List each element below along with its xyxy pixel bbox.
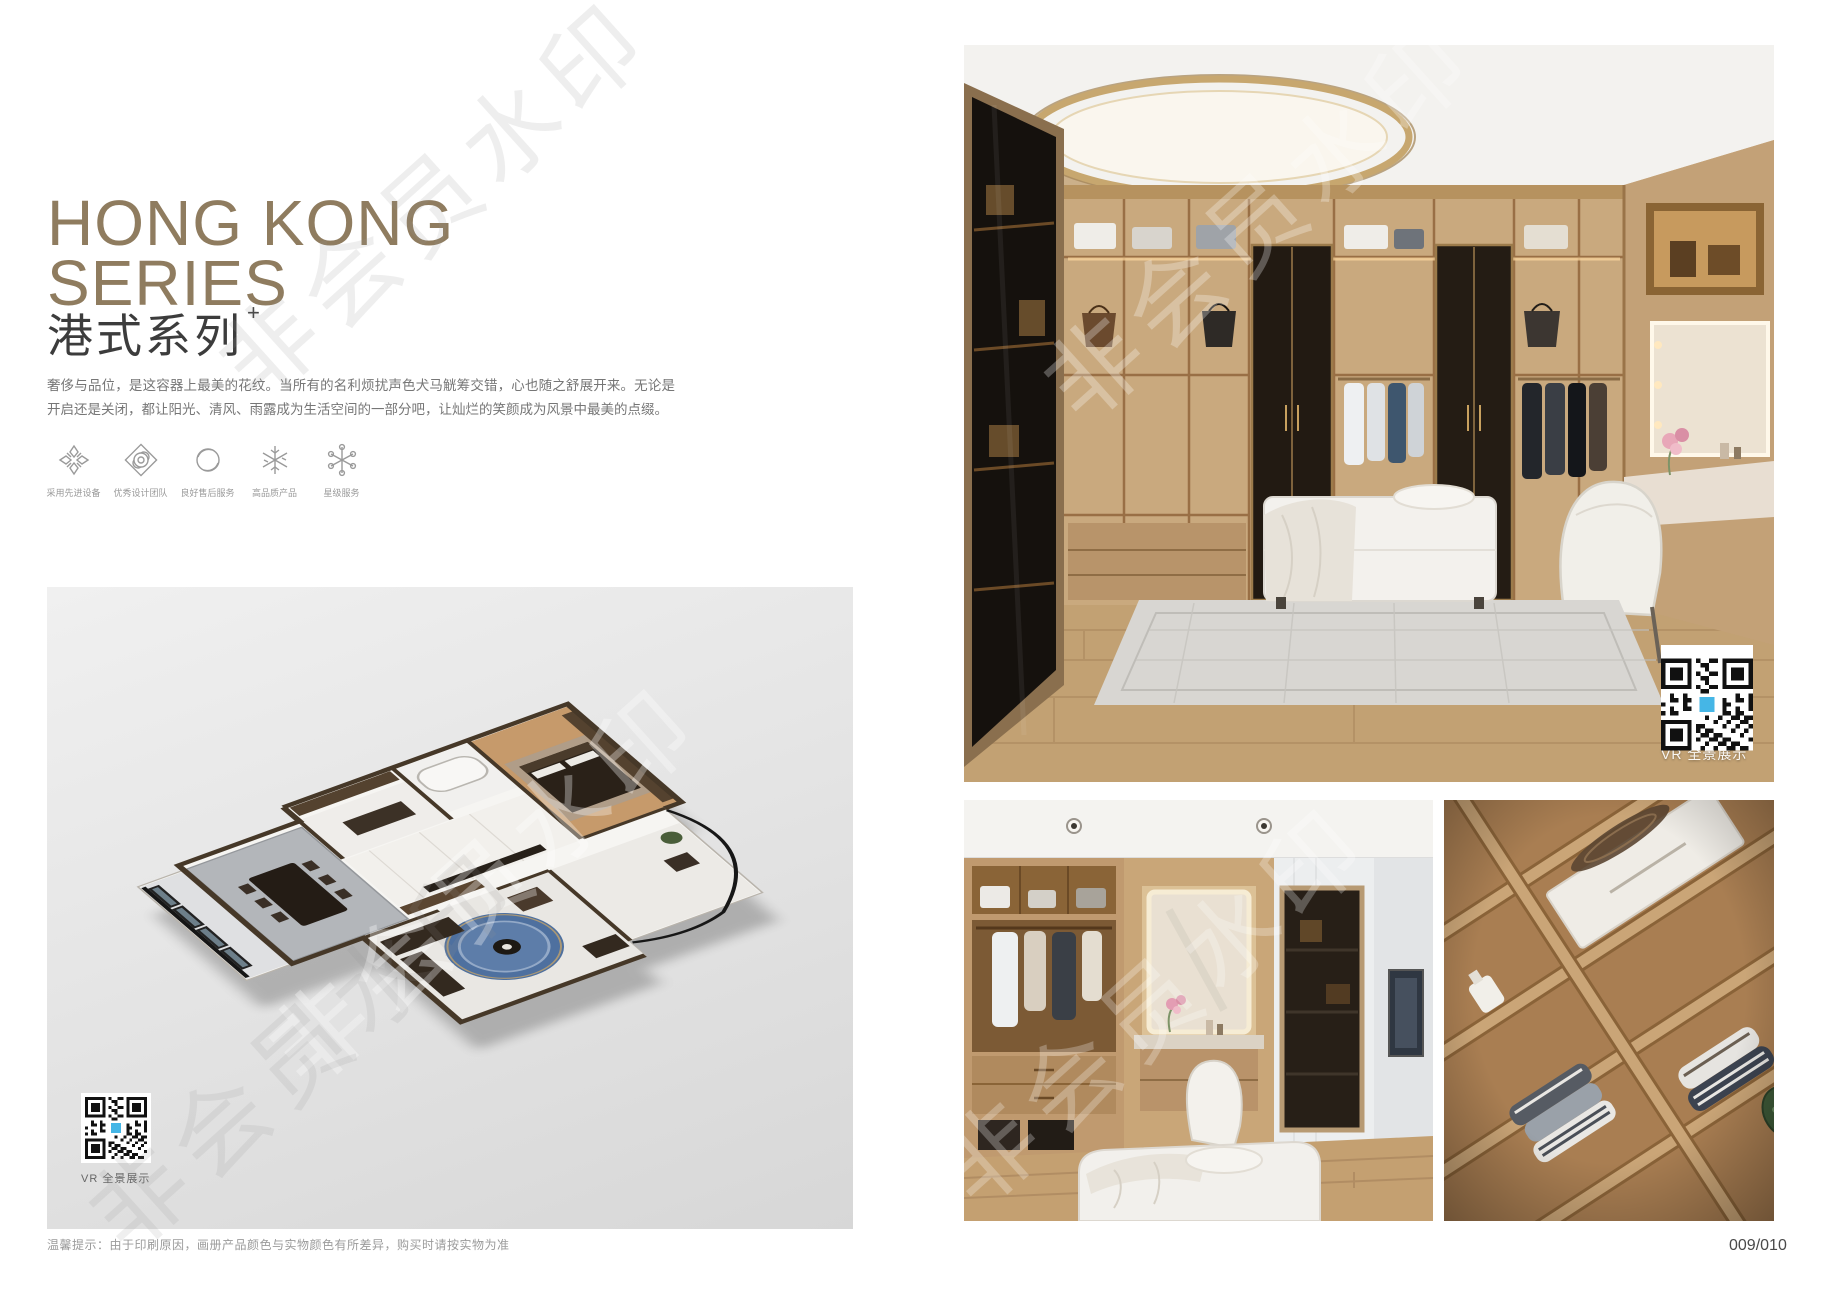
isometric-floorplan-illustration — [47, 607, 853, 1167]
series-title-en: HONG KONGSERIES — [47, 193, 454, 313]
floorplan-qr-block: VR 全景展示 — [81, 1093, 151, 1186]
feature-after-sales: 良好售后服务 — [174, 442, 241, 499]
pillow — [1394, 485, 1474, 509]
dressing-room-photo — [964, 800, 1433, 1221]
star-snowflake-icon — [324, 442, 360, 478]
feature-label: 星级服务 — [323, 486, 359, 499]
vanity-console — [1124, 858, 1274, 1192]
qr-code — [1661, 645, 1753, 737]
walkin-closet-illustration — [964, 45, 1774, 782]
qr-code — [81, 1093, 151, 1163]
snowflake-icon — [257, 442, 293, 478]
dressing-room-illustration — [964, 800, 1433, 1221]
feature-label: 采用先进设备 — [46, 486, 100, 499]
catalog-page: 非会员水印 非会员水印 非会员水印 非会员水印 非会员水印 HONG KONGS… — [0, 0, 1836, 1307]
white-chair — [1187, 1061, 1242, 1148]
bed-bench — [1264, 485, 1496, 609]
ring-icon — [190, 442, 226, 478]
left-wardrobe — [964, 858, 1124, 1158]
bed-corner — [1079, 1142, 1320, 1221]
feature-advanced-equipment: 采用先进设备 — [40, 442, 107, 499]
showroom-qr-block: VR 全景展示 — [1661, 645, 1753, 764]
pinwheel-icon — [56, 442, 92, 478]
feature-label: 良好售后服务 — [180, 486, 234, 499]
page-number: 009/010 — [1729, 1237, 1787, 1255]
feature-label: 优秀设计团队 — [113, 486, 167, 499]
hanging-garment — [992, 932, 1018, 1027]
black-glass-cabinet — [964, 83, 1064, 767]
feature-star-service: 星级服务 — [308, 442, 375, 499]
drawer-unit — [1068, 523, 1246, 600]
feature-quality-product: 高品质产品 — [241, 442, 308, 499]
walkin-closet-photo: VR 全景展示 — [964, 45, 1774, 782]
series-title-cn: 港式系列+ — [47, 300, 259, 366]
shelf-detail-photo — [1444, 800, 1774, 1221]
floorplan-iso-group — [116, 704, 795, 1065]
blanket — [1264, 499, 1356, 601]
feature-list: 采用先进设备 优秀设计团队 良好售后服务 高品质产品 — [40, 442, 375, 499]
ceiling — [964, 800, 1433, 858]
floorplan-panel: VR 全景展示 — [47, 587, 853, 1229]
series-description: 奢侈与品位，是这容器上最美的花纹。当所有的名利烦扰声色犬马觥筹交错，心也随之舒展… — [47, 374, 675, 422]
vr-panorama-label: VR 全景展示 — [81, 1170, 151, 1186]
shelf-detail-illustration — [1444, 800, 1774, 1221]
series-title-cn-text: 港式系列 — [47, 310, 243, 362]
title-plus-suffix: + — [247, 300, 263, 325]
print-disclaimer: 温馨提示：由于印刷原因，画册产品颜色与实物颜色有所差异，购买时请按实物为准 — [47, 1236, 510, 1253]
rosette-icon — [123, 442, 159, 478]
right-wall — [1274, 858, 1433, 1168]
feature-label: 高品质产品 — [252, 486, 297, 499]
feature-design-team: 优秀设计团队 — [107, 442, 174, 499]
vanity-counter — [1134, 1035, 1264, 1049]
